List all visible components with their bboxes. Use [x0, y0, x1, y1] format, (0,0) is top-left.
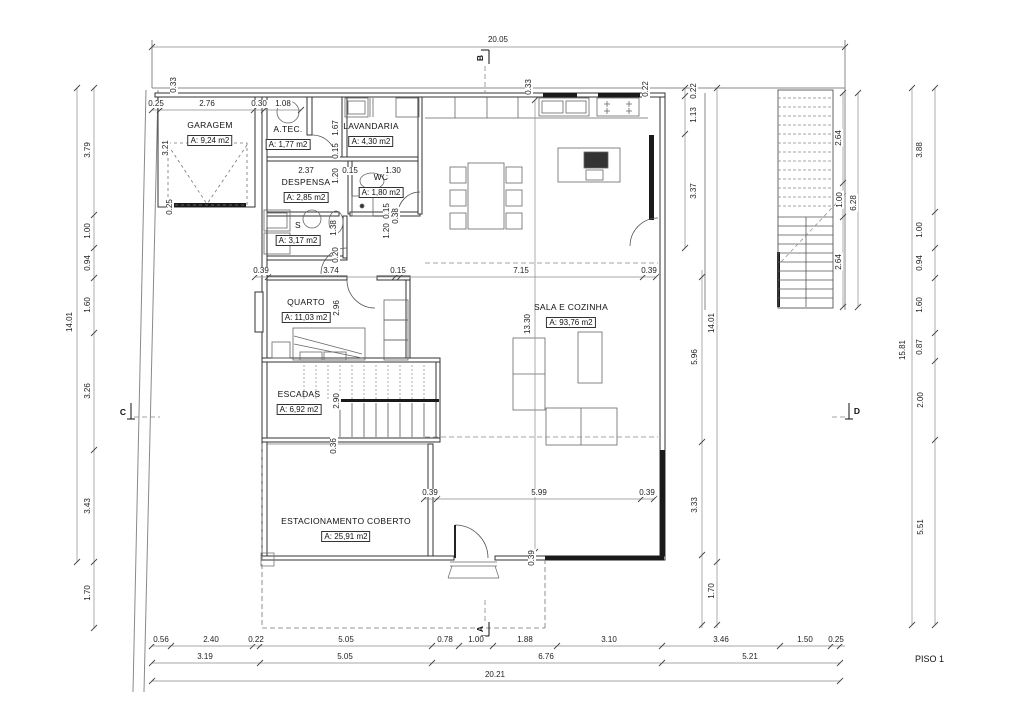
room-area: A: 93,76 m2	[546, 317, 595, 328]
room-area: A: 1,80 m2	[359, 187, 404, 198]
room-label-estacionamento: ESTACIONAMENTO COBERTOA: 25,91 m2	[281, 516, 411, 544]
dimension-label: 2.90	[333, 392, 341, 410]
dimension-label: 3.43	[84, 497, 92, 515]
dimension-label: 1.00	[84, 222, 92, 240]
dimension-label: 0.94	[916, 254, 924, 272]
dimension-label: 3.26	[84, 382, 92, 400]
dimension-label: 3.21	[162, 139, 170, 157]
room-area: A: 25,91 m2	[321, 531, 370, 542]
dimension-label: 2.00	[917, 391, 925, 409]
dimension-label: 0.15	[341, 167, 359, 175]
dimension-label: 3.74	[322, 267, 340, 275]
dimension-label: 0.33	[170, 76, 178, 94]
dimension-label: 2.37	[297, 167, 315, 175]
room-label-garagem: GARAGEMA: 9,24 m2	[187, 120, 233, 148]
dimension-label: 3.19	[196, 653, 214, 661]
dimension-label: 0.39	[421, 489, 439, 497]
dimension-label: 0.94	[84, 254, 92, 272]
dimension-label: 3.37	[690, 182, 698, 200]
room-area: A: 9,24 m2	[188, 135, 233, 146]
dimension-label: 1.67	[332, 119, 340, 137]
room-name: S	[276, 220, 321, 230]
dimension-label: 14.01	[66, 311, 74, 333]
dimension-label: 5.99	[530, 489, 548, 497]
dimension-label: 5.05	[337, 636, 355, 644]
dimension-label: 0.22	[690, 82, 698, 100]
dimension-label: 5.05	[336, 653, 354, 661]
dimension-label: 2.76	[198, 100, 216, 108]
room-name: GARAGEM	[187, 120, 233, 130]
dimension-label: 15.81	[899, 339, 907, 361]
section-marker-d: D	[854, 406, 860, 416]
dimension-label: 1.70	[708, 582, 716, 600]
dimension-label: 7.15	[512, 267, 530, 275]
dimension-label: 2.96	[333, 299, 341, 317]
dimension-label: 1.00	[467, 636, 485, 644]
dimension-label: 0.39	[252, 267, 270, 275]
dimension-label: 1.20	[383, 222, 391, 240]
room-name: DESPENSA	[282, 177, 331, 187]
room-label-wc: WCA: 1,80 m2	[359, 172, 404, 200]
dimension-label: 1.08	[274, 100, 292, 108]
dimension-label: 1.38	[330, 219, 338, 237]
dimension-label: 2.40	[202, 636, 220, 644]
dimension-label: 3.46	[712, 636, 730, 644]
room-name: QUARTO	[282, 297, 331, 307]
dimension-label: 0.36	[330, 437, 338, 455]
dimension-label: 1.00	[836, 191, 844, 209]
dimension-label: 3.88	[916, 141, 924, 159]
dimension-label: 1.88	[516, 636, 534, 644]
dimension-label: 0.33	[525, 78, 533, 96]
dimension-label: 6.76	[537, 653, 555, 661]
dimension-label: 5.96	[691, 348, 699, 366]
dimension-label: 1.20	[332, 167, 340, 185]
dimension-label: 1.00	[916, 221, 924, 239]
dimension-label: 0.22	[642, 80, 650, 98]
dimension-label: 5.21	[741, 653, 759, 661]
room-area: A: 3,17 m2	[276, 235, 321, 246]
room-name: ESCADAS	[277, 389, 322, 399]
dimension-label: 3.79	[84, 141, 92, 159]
room-label-lavandaria: LAVANDARIAA: 4,30 m2	[343, 121, 399, 149]
room-area: A: 6,92 m2	[277, 404, 322, 415]
dimension-label: 1.70	[84, 584, 92, 602]
dimension-label: 0.56	[152, 636, 170, 644]
sheet-title: PISO 1	[915, 654, 944, 664]
dimension-label: 2.64	[835, 129, 843, 147]
room-area: A: 11,03 m2	[282, 312, 331, 323]
dimension-label: 0.22	[247, 636, 265, 644]
room-name: LAVANDARIA	[343, 121, 399, 131]
labels-layer: GARAGEMA: 9,24 m2A.TEC.A: 1,77 m2LAVANDA…	[0, 0, 1010, 720]
dimension-label: 1.50	[796, 636, 814, 644]
room-label-quarto: QUARTOA: 11,03 m2	[282, 297, 331, 325]
dimension-label: 0.39	[640, 267, 658, 275]
room-name: A.TEC.	[266, 124, 311, 134]
section-marker-b: B	[475, 55, 485, 61]
dimension-label: 0.38	[392, 207, 400, 225]
room-label-despensa: DESPENSAA: 2,85 m2	[282, 177, 331, 205]
dimension-label: 0.15	[332, 142, 340, 160]
room-label-escadas: ESCADASA: 6,92 m2	[277, 389, 322, 417]
room-area: A: 1,77 m2	[266, 139, 311, 150]
room-label-atec: A.TEC.A: 1,77 m2	[266, 124, 311, 152]
dimension-label: 6.28	[850, 194, 858, 212]
dimension-label: 0.20	[332, 246, 340, 264]
floor-plan: GARAGEMA: 9,24 m2A.TEC.A: 1,77 m2LAVANDA…	[0, 0, 1010, 720]
dimension-label: 2.64	[835, 253, 843, 271]
dimension-label: 1.60	[916, 296, 924, 314]
dimension-label: 0.39	[638, 489, 656, 497]
dimension-label: 14.01	[708, 312, 716, 334]
dimension-label: 0.25	[166, 198, 174, 216]
section-marker-a: A	[475, 626, 485, 632]
dimension-label: 3.33	[691, 496, 699, 514]
dimension-label: 0.15	[383, 202, 391, 220]
dimension-label: 0.39	[528, 549, 536, 567]
room-label-s: SA: 3,17 m2	[276, 220, 321, 248]
dimension-label: 5.51	[917, 518, 925, 536]
room-name: ESTACIONAMENTO COBERTO	[281, 516, 411, 526]
room-name: SALA E COZINHA	[534, 302, 608, 312]
dimension-label: 1.60	[84, 296, 92, 314]
dimension-label: 3.10	[600, 636, 618, 644]
room-area: A: 2,85 m2	[284, 192, 329, 203]
dimension-label: 0.15	[389, 267, 407, 275]
room-area: A: 4,30 m2	[349, 136, 394, 147]
dimension-label: 0.25	[827, 636, 845, 644]
dimension-label: 0.30	[250, 100, 268, 108]
dimension-label: 20.21	[484, 671, 506, 679]
dimension-label: 1.13	[690, 106, 698, 124]
section-marker-c: C	[120, 407, 126, 417]
dimension-label: 1.30	[384, 167, 402, 175]
dimension-label: 13.30	[524, 313, 532, 335]
dimension-label: 0.87	[916, 338, 924, 356]
dimension-label: 0.78	[436, 636, 454, 644]
room-label-sala-cozinha: SALA E COZINHAA: 93,76 m2	[534, 302, 608, 330]
dimension-label: 20.05	[487, 36, 509, 44]
dimension-label: 0.25	[147, 100, 165, 108]
